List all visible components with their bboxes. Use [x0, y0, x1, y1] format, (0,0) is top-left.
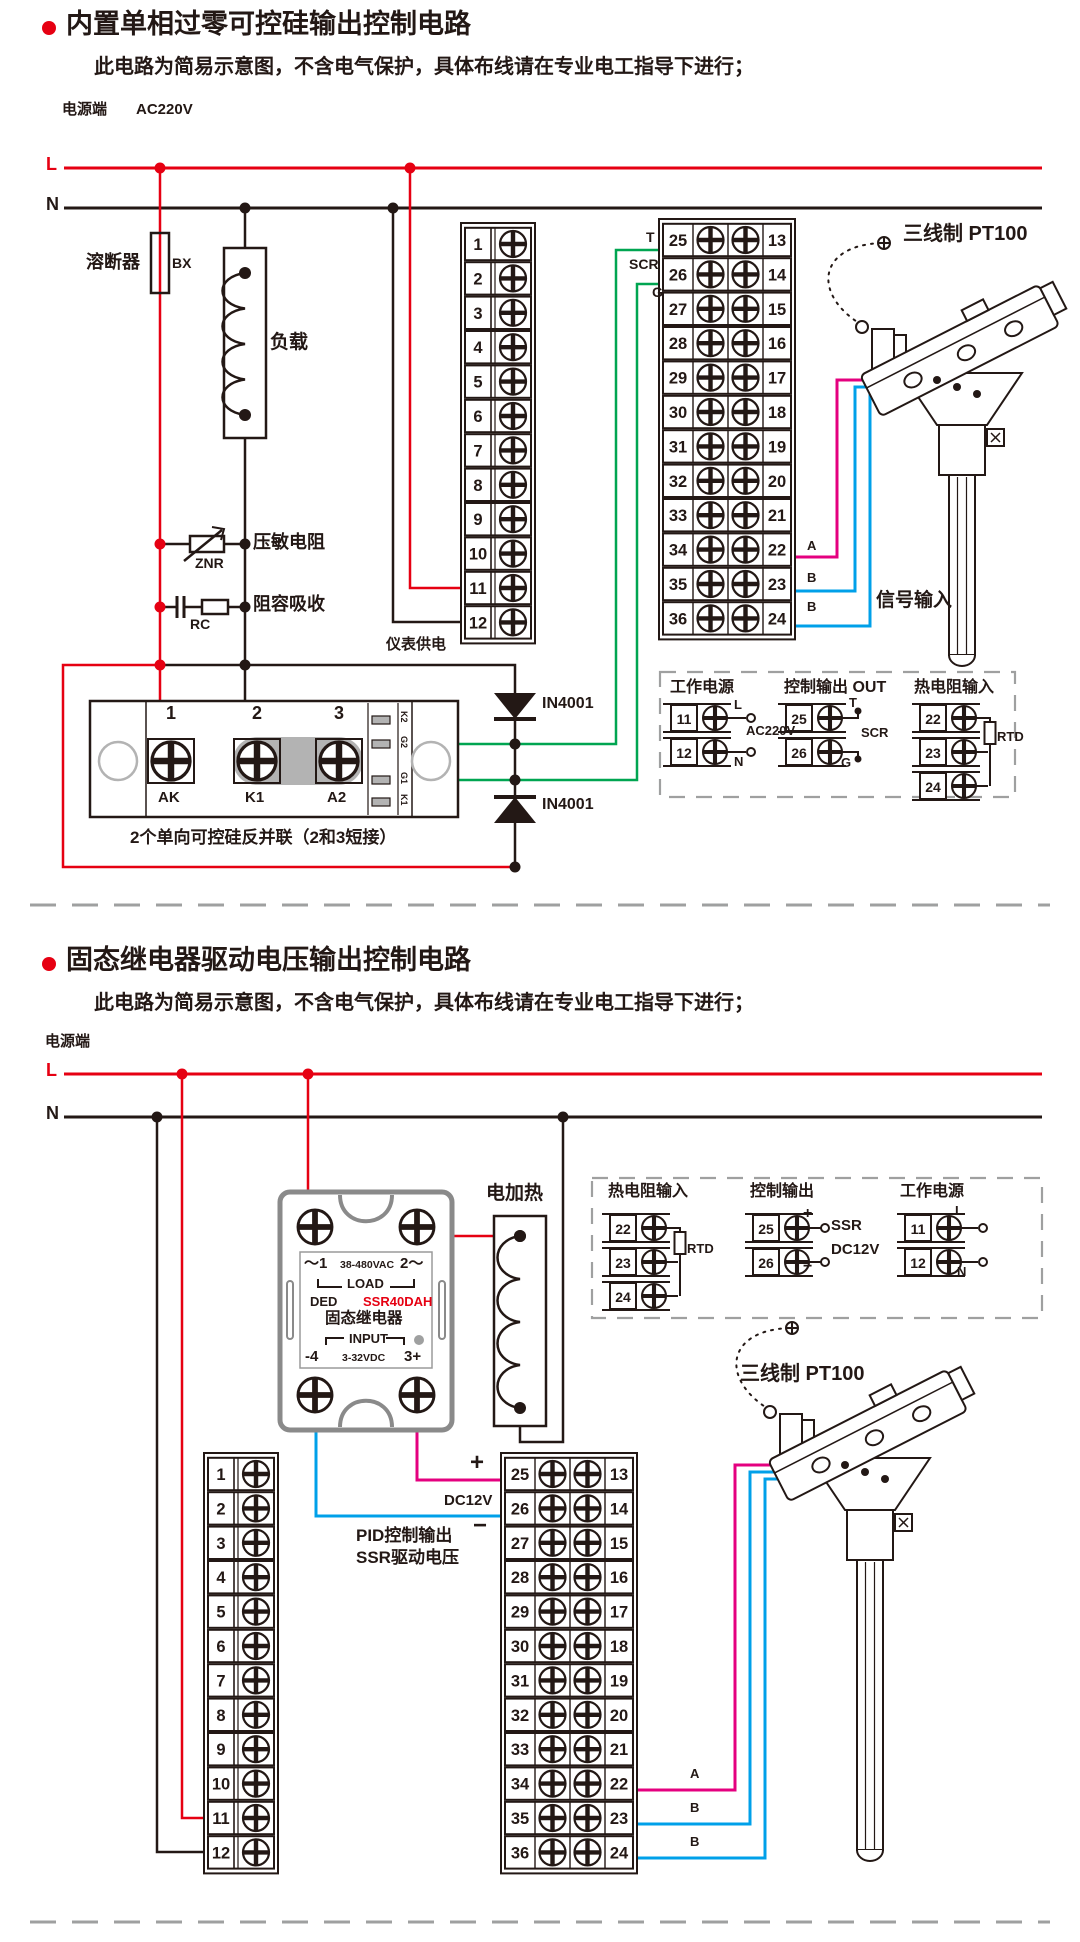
terminal-screw	[540, 1702, 566, 1728]
legend2-l-label: L	[955, 1204, 963, 1218]
terminal-number: 9	[216, 1741, 225, 1759]
terminal-number: 29	[511, 1604, 529, 1622]
terminal-number: 7	[216, 1672, 225, 1690]
junction-dot	[510, 862, 521, 873]
scr-pad-k1-label: K1	[399, 794, 409, 806]
legend1-t-label: T	[849, 696, 857, 710]
junction-dot	[239, 267, 251, 279]
terminal-number: 19	[610, 1672, 628, 1690]
terminal-number: 21	[768, 507, 786, 525]
diode2-label: IN4001	[542, 797, 594, 814]
gate-pad	[372, 776, 390, 784]
junction-dot	[953, 383, 961, 391]
ssr-model-label: SSR40DAH	[363, 1295, 432, 1309]
section1-subtitle: 此电路为简易示意图，不含电气保护，具体布线请在专业电工指导下进行；	[94, 57, 754, 78]
terminal-screw	[540, 1530, 566, 1556]
terminal-screw	[698, 502, 724, 528]
ssr-line1-mid: 38-480VAC	[340, 1260, 394, 1271]
section2-title: 固态继电器驱动电压输出控制电路	[66, 946, 471, 974]
junction-dot	[152, 1112, 163, 1123]
terminal-screw	[500, 334, 526, 360]
terminal-screw	[703, 706, 727, 730]
terminal-screw	[575, 1495, 601, 1521]
terminal-number: 10	[212, 1776, 230, 1794]
diode1-label: IN4001	[542, 696, 594, 713]
terminal-screw	[698, 571, 724, 597]
terminal-number: 15	[768, 301, 786, 319]
terminal-number: 29	[669, 370, 687, 388]
terminal-screw	[952, 774, 976, 798]
terminal-screw	[500, 437, 526, 463]
terminal-number: 22	[768, 542, 786, 560]
terminal-number: 14	[610, 1500, 629, 1518]
terminal-number: 28	[669, 335, 687, 353]
terminal-screw	[238, 742, 276, 780]
wire	[392, 250, 702, 744]
legend2-minus-label: −	[803, 1259, 812, 1276]
junction-dot	[510, 739, 521, 750]
scr-terminal1-label: 1	[166, 704, 176, 723]
terminal-block: 123456789101112	[204, 1453, 278, 1873]
terminal-number: 30	[669, 404, 687, 422]
terminal-screw	[540, 1599, 566, 1625]
terminal-number: 13	[610, 1466, 628, 1484]
terminal-screw	[733, 261, 759, 287]
varistor-code-label: ZNR	[195, 556, 224, 571]
wire-b1-label-2: B	[690, 1801, 699, 1815]
rtd-resistor	[675, 1232, 686, 1254]
terminal-screw	[500, 506, 526, 532]
open-terminal	[979, 1258, 987, 1266]
terminal-screw	[243, 1736, 269, 1762]
legend-terminal-strip: 222324	[912, 704, 988, 800]
terminal-screw	[733, 399, 759, 425]
meter-power-label: 仪表供电	[386, 637, 446, 653]
ssr-line1-right: 2～	[400, 1256, 423, 1272]
terminal-number: 32	[669, 473, 687, 491]
terminal-screw	[698, 227, 724, 253]
terminal-screw	[298, 1210, 332, 1244]
terminal-screw	[540, 1495, 566, 1521]
ssr-input-label: INPUT	[349, 1332, 388, 1346]
junction-dot	[933, 376, 941, 384]
scr-pad-k2-label: K2	[399, 711, 409, 723]
terminal-number: 24	[610, 1844, 629, 1862]
terminal-screw	[243, 1495, 269, 1521]
scr-pad-g2-label: G2	[399, 736, 409, 748]
legend2-dc12v-label: DC12V	[831, 1242, 879, 1258]
scr-terminal3-label: 3	[334, 704, 344, 723]
junction-dot	[240, 660, 251, 671]
wire-a-label-1: A	[807, 539, 816, 553]
terminal-number: 5	[473, 374, 482, 392]
terminal-number: 16	[768, 335, 786, 353]
legend2-power-title: 工作电源	[900, 1184, 964, 1201]
terminal-screw	[698, 468, 724, 494]
terminal-screw	[500, 609, 526, 635]
pt100-label-2: 三线制 PT100	[740, 1364, 864, 1385]
terminal-screw	[243, 1530, 269, 1556]
terminal-number: 20	[610, 1707, 628, 1725]
terminal-screw	[540, 1805, 566, 1831]
wire	[600, 1472, 865, 1824]
rc-resistor	[202, 600, 228, 614]
terminal-number: 31	[669, 438, 687, 456]
terminal-number: 23	[768, 576, 786, 594]
terminal-number: 25	[511, 1466, 529, 1484]
diode-symbol	[494, 693, 536, 719]
gate-pad	[372, 716, 390, 724]
legend2-plus-label: +	[803, 1206, 812, 1223]
terminal-screw	[500, 369, 526, 395]
ssr-in-mid: 3-32VDC	[342, 1353, 385, 1364]
junction-dot	[514, 1230, 526, 1242]
terminal-number: 33	[511, 1741, 529, 1759]
terminal-screw	[243, 1633, 269, 1659]
section1-line-n-label: N	[46, 195, 59, 214]
wire-a-label-2: A	[690, 1767, 699, 1781]
varistor-symbol	[190, 536, 224, 552]
terminal-screw	[500, 472, 526, 498]
junction-dot	[303, 1069, 314, 1080]
section2-line-n-label: N	[46, 1104, 59, 1123]
terminal-screw	[500, 403, 526, 429]
legend1-rtd-code: RTD	[997, 730, 1024, 744]
terminal-number: 16	[610, 1569, 628, 1587]
junction-dot	[155, 539, 166, 550]
junction-dot	[881, 1475, 889, 1483]
terminal-screw	[500, 265, 526, 291]
terminal-screw	[703, 740, 727, 764]
section2-power-terminal-label: 电源端	[45, 1034, 90, 1050]
out-scr-label: SCR	[629, 257, 659, 272]
junction-dot	[405, 163, 416, 174]
terminal-number: 2	[473, 270, 482, 288]
wiring-diagram-page: 1234567891011122513261427152816291730183…	[0, 0, 1080, 1942]
terminal-number: 35	[511, 1810, 529, 1828]
scr-k1-label: K1	[245, 790, 264, 806]
terminal-screw	[500, 300, 526, 326]
terminal-screw	[243, 1702, 269, 1728]
terminal-screw	[575, 1736, 601, 1762]
section2-subtitle: 此电路为简易示意图，不含电气保护，具体布线请在专业电工指导下进行；	[94, 993, 754, 1014]
terminal-screw	[575, 1461, 601, 1487]
legend2-out-title: 控制输出	[750, 1184, 814, 1201]
ssr-line1-left: ～1	[304, 1256, 327, 1272]
legend-terminal-strip: 222324	[602, 1214, 678, 1310]
terminal-screw	[733, 330, 759, 356]
legend1-power-title: 工作电源	[670, 680, 734, 697]
junction-dot	[558, 1112, 569, 1123]
section1-title: 内置单相过零可控硅输出控制电路	[66, 10, 471, 38]
terminal-block: 2513261427152816291730183119322033213422…	[659, 219, 795, 639]
terminal-number: 36	[511, 1844, 529, 1862]
legend1-n-label: N	[734, 755, 743, 769]
legend1-scr-label: SCR	[861, 726, 888, 740]
terminal-number: 25	[758, 1221, 774, 1237]
fuse-code-label: BX	[172, 256, 191, 271]
terminal-screw	[243, 1667, 269, 1693]
terminal-number: 7	[473, 442, 482, 460]
scr-ak-label: AK	[158, 790, 180, 806]
legend1-out-title: 控制输出 OUT	[784, 680, 886, 697]
junction-dot	[239, 409, 251, 421]
junction-dot	[841, 1461, 849, 1469]
terminal-screw	[733, 468, 759, 494]
terminal-number: 26	[669, 266, 687, 284]
wire	[410, 168, 462, 588]
ssr-in-right: 3+	[404, 1349, 421, 1365]
terminal-screw	[818, 706, 842, 730]
junction-dot	[388, 203, 399, 214]
terminal-number: 24	[925, 779, 941, 795]
terminal-number: 15	[610, 1535, 628, 1553]
fuse-label: 溶断器	[86, 253, 140, 272]
terminal-number: 35	[669, 576, 687, 594]
terminal-screw	[698, 537, 724, 563]
terminal-screw	[698, 330, 724, 356]
terminal-number: 27	[511, 1535, 529, 1553]
terminal-number: 4	[473, 339, 483, 357]
terminal-number: 21	[610, 1741, 628, 1759]
legend1-g-label: G	[841, 756, 851, 770]
terminal-screw	[243, 1805, 269, 1831]
scr-pad-g1-label: G1	[399, 772, 409, 784]
junction-dot	[240, 539, 251, 550]
terminal-number: 9	[473, 511, 482, 529]
terminal-screw	[320, 742, 358, 780]
open-terminal	[747, 714, 755, 722]
terminal-number: 26	[758, 1255, 774, 1271]
legend2-n-label: N	[957, 1265, 966, 1279]
terminal-screw	[540, 1564, 566, 1590]
terminal-screw	[786, 1322, 798, 1334]
section2-line-l-label: L	[46, 1061, 57, 1080]
terminal-screw	[733, 296, 759, 322]
terminal-screw	[540, 1736, 566, 1762]
heater-label: 电加热	[486, 1184, 543, 1204]
terminal-screw	[733, 571, 759, 597]
ssr-name-label: 固态继电器	[325, 1311, 403, 1327]
gate-pad	[372, 740, 390, 748]
terminal-number: 1	[216, 1466, 225, 1484]
legend1-rtd-title: 热电阻输入	[914, 680, 994, 697]
legend-terminal-strip: 1112	[663, 704, 739, 766]
terminal-number: 23	[925, 745, 941, 761]
terminal-screw	[733, 605, 759, 631]
terminal-block: 123456789101112	[461, 223, 535, 643]
terminal-number: 22	[615, 1221, 631, 1237]
terminal-screw	[575, 1530, 601, 1556]
terminal-block: 2513261427152816291730183119322033213422…	[501, 1453, 637, 1873]
terminal-number: 5	[216, 1604, 225, 1622]
open-terminal	[747, 748, 755, 756]
open-terminal	[821, 1224, 829, 1232]
terminal-screw	[243, 1771, 269, 1797]
terminal-number: 3	[473, 305, 482, 323]
load-label: 负载	[270, 333, 308, 353]
junction-dot	[155, 660, 166, 671]
terminal-screw	[952, 706, 976, 730]
terminal-screw	[500, 231, 526, 257]
junction-dot	[240, 203, 251, 214]
terminal-screw	[540, 1633, 566, 1659]
terminal-screw	[575, 1667, 601, 1693]
terminal-screw	[152, 742, 190, 780]
terminal-screw	[698, 296, 724, 322]
rc-code-label: RC	[190, 617, 210, 632]
junction-dot	[973, 390, 981, 398]
terminal-screw	[698, 365, 724, 391]
junction-dot	[514, 1402, 526, 1414]
legend2-rtd-code: RTD	[687, 1242, 714, 1256]
terminal-screw	[733, 365, 759, 391]
rc-label: 阻容吸收	[253, 595, 325, 614]
terminal-number: 12	[212, 1844, 230, 1862]
out-g-label: G	[652, 285, 663, 300]
wire-b2-label-2: B	[690, 1835, 699, 1849]
terminal-number: 2	[216, 1500, 225, 1518]
terminal-screw	[878, 237, 890, 249]
diode-symbol	[494, 797, 536, 823]
terminal-number: 24	[615, 1289, 631, 1305]
terminal-number: 23	[615, 1255, 631, 1271]
terminal-number: 6	[473, 408, 482, 426]
open-terminal	[821, 1258, 829, 1266]
terminal-screw	[500, 541, 526, 567]
terminal-screw	[575, 1839, 601, 1865]
terminal-number: 17	[768, 370, 786, 388]
terminal-screw	[575, 1702, 601, 1728]
terminal-screw	[642, 1216, 666, 1240]
junction-dot	[855, 756, 862, 763]
signal-input-label: 信号输入	[876, 591, 952, 611]
terminal-number: 18	[768, 404, 786, 422]
junction-dot	[155, 602, 166, 613]
terminal-number: 3	[216, 1535, 225, 1553]
scr-terminal2-label: 2	[252, 704, 262, 723]
terminal-number: 17	[610, 1604, 628, 1622]
terminal-screw	[642, 1284, 666, 1308]
varistor-label: 压敏电阻	[253, 533, 325, 552]
terminal-screw	[400, 1378, 434, 1412]
terminal-number: 12	[910, 1255, 926, 1271]
pt100-label-1: 三线制 PT100	[903, 224, 1027, 245]
wire-b2-label-1: B	[807, 600, 816, 614]
terminal-number: 11	[469, 580, 486, 598]
ssr-load-label: LOAD	[347, 1277, 384, 1291]
junction-dot	[155, 163, 166, 174]
legend1-l-label: L	[734, 698, 742, 712]
terminal-screw	[575, 1599, 601, 1625]
terminal-number: 12	[469, 614, 487, 632]
terminal-screw	[698, 261, 724, 287]
wire-b1-label-1: B	[807, 571, 816, 585]
terminal-number: 22	[610, 1776, 628, 1794]
terminal-number: 6	[216, 1638, 225, 1656]
dc-plus-label: +	[470, 1450, 484, 1475]
out-t-label: T	[646, 230, 655, 245]
terminal-number: 31	[511, 1672, 529, 1690]
wire	[393, 208, 462, 622]
ssr-ded-label: DED	[310, 1295, 337, 1309]
terminal-number: 22	[925, 711, 941, 727]
terminal-number: 11	[677, 711, 692, 727]
section2-bullet-icon	[42, 957, 56, 971]
terminal-screw	[298, 1378, 332, 1412]
junction-dot	[861, 1468, 869, 1476]
terminal-screw	[500, 575, 526, 601]
dc12v-label: DC12V	[444, 1493, 492, 1509]
terminal-number: 11	[911, 1221, 926, 1237]
terminal-screw	[698, 605, 724, 631]
wire	[160, 665, 515, 696]
terminal-number: 13	[768, 232, 786, 250]
terminal-number: 34	[669, 542, 688, 560]
terminal-number: 27	[669, 301, 687, 319]
open-terminal	[979, 1224, 987, 1232]
terminal-number: 14	[768, 266, 787, 284]
gate-pad	[372, 798, 390, 806]
terminal-number: 19	[768, 438, 786, 456]
terminal-screw	[575, 1771, 601, 1797]
terminal-number: 26	[511, 1500, 529, 1518]
pid-output-label: PID控制输出	[356, 1527, 452, 1545]
section1-power-terminal-label: 电源端	[62, 102, 107, 118]
terminal-screw	[952, 740, 976, 764]
pt100-sensor	[736, 1322, 979, 1861]
section1-voltage-label: AC220V	[136, 102, 193, 118]
terminal-screw	[698, 433, 724, 459]
terminal-screw	[540, 1667, 566, 1693]
section1-bullet-icon	[42, 21, 56, 35]
terminal-number: 20	[768, 473, 786, 491]
dc-minus-label: −	[473, 1513, 487, 1538]
terminal-number: 24	[768, 610, 787, 628]
terminal-screw	[733, 433, 759, 459]
junction-dot	[177, 1069, 188, 1080]
terminal-screw	[937, 1216, 961, 1240]
terminal-number: 25	[669, 232, 687, 250]
scr-a2-label: A2	[327, 790, 346, 806]
scr-note-label: 2个单向可控硅反并联（2和3短接）	[130, 829, 396, 847]
terminal-screw	[733, 502, 759, 528]
terminal-screw	[540, 1839, 566, 1865]
junction-dot	[240, 602, 251, 613]
terminal-number: 33	[669, 507, 687, 525]
terminal-screw	[733, 537, 759, 563]
terminal-screw	[575, 1805, 601, 1831]
legend2-rtd-title: 热电阻输入	[608, 1184, 688, 1201]
legend2-ssr-label: SSR	[831, 1218, 862, 1234]
terminal-screw	[243, 1564, 269, 1590]
terminal-screw	[540, 1461, 566, 1487]
section1-line-l-label: L	[46, 155, 57, 174]
terminal-number: 1	[473, 236, 482, 254]
ssr-led	[414, 1335, 424, 1345]
terminal-number: 8	[473, 477, 482, 495]
terminal-screw	[243, 1599, 269, 1625]
ssr-in-left: -4	[305, 1349, 318, 1365]
wire	[600, 1479, 885, 1858]
terminal-number: 26	[791, 745, 807, 761]
terminal-number: 34	[511, 1776, 530, 1794]
terminal-screw	[575, 1633, 601, 1659]
terminal-screw	[642, 1250, 666, 1274]
junction-dot	[510, 775, 521, 786]
terminal-number: 36	[669, 610, 687, 628]
legend1-ac220v-label: AC220V	[746, 724, 795, 738]
